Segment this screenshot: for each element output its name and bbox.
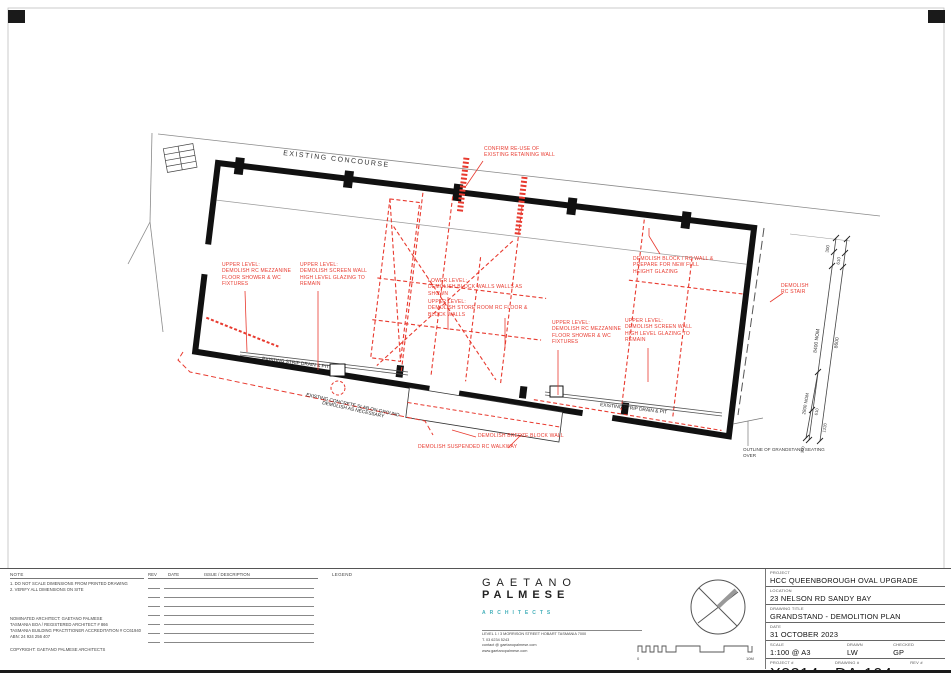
date-header: DATE bbox=[168, 572, 204, 577]
note-upper-screen-right: UPPER LEVEL: DEMOLISH SCREEN WALL HIGH L… bbox=[625, 318, 692, 343]
notes-title: NOTE bbox=[10, 572, 144, 579]
scale-bar bbox=[638, 646, 752, 652]
drawing-sheet: 300 610 8400 NOM 8600 2800 NOM 610 1220 … bbox=[0, 0, 951, 673]
north-scale-svg: 0 10M bbox=[628, 569, 773, 669]
drawn-value: LW bbox=[847, 648, 893, 657]
note-upper-mezzanine-left: UPPER LEVEL: DEMOLISH RC MEZZANINE FLOOR… bbox=[222, 262, 291, 287]
note-block-rc-wall: DEMOLISH BLOCK / RC WALL & PREPARE FOR N… bbox=[633, 256, 713, 275]
slab-note-line1: EXISTING CONCRETE SLAB ON GROUND bbox=[306, 392, 401, 419]
architect-name-line2: PALMESE bbox=[482, 589, 647, 601]
concourse-label: EXISTING CONCOURSE bbox=[283, 150, 390, 169]
architect-block: GAETANO PALMESE ARCHITECTS LEVEL 1 / 3 M… bbox=[482, 577, 647, 655]
note-lower-block-walls: LOWER LEVEL: DEMOLISH BLOCK WALLS WALLS … bbox=[428, 278, 522, 297]
existing-stair-plan bbox=[163, 144, 197, 173]
architect-web: www.gaetanopalmese.com bbox=[482, 649, 642, 655]
note-suspended-walkway: DEMOLISH SUSPENDED RC WALKWAY bbox=[418, 444, 517, 450]
title-block: PROJECT HCC QUEENBOROUGH OVAL UPGRADE LO… bbox=[765, 569, 945, 669]
project-name: HCC QUEENBOROUGH OVAL UPGRADE bbox=[770, 576, 941, 585]
revision-table: REV DATE ISSUE / DESCRIPTION bbox=[148, 572, 318, 579]
north-symbol bbox=[691, 580, 745, 634]
dim-300-top: 300 bbox=[825, 244, 831, 253]
revision-rows bbox=[164, 580, 314, 643]
location-row: LOCATION 23 NELSON RD SANDY BAY bbox=[766, 587, 945, 605]
project-label: PROJECT bbox=[770, 570, 941, 575]
checked-value: GP bbox=[893, 648, 941, 657]
date-label: DATE bbox=[770, 624, 941, 629]
date-value: 31 OCTOBER 2023 bbox=[770, 630, 941, 639]
checked-label: CHECKED bbox=[893, 642, 941, 647]
note-rc-stair: DEMOLISH RC STAIR bbox=[781, 283, 809, 296]
scale-drawn-checked-row: SCALE 1:100 @ A3 DRAWN LW CHECKED GP bbox=[766, 641, 945, 659]
project-row: PROJECT HCC QUEENBOROUGH OVAL UPGRADE bbox=[766, 569, 945, 587]
title-strip: NOTE 1. DO NOT SCALE DIMENSIONS FROM PRI… bbox=[0, 568, 951, 671]
dim-2800: 2800 NOM bbox=[801, 392, 810, 415]
note-seating-outline: OUTLINE OF GRANDSTAND SEATING OVER bbox=[743, 447, 825, 459]
scale-bar-end: 10M bbox=[746, 656, 754, 661]
note-upper-mezzanine-right: UPPER LEVEL: DEMOLISH RC MEZZANINE FLOOR… bbox=[552, 320, 621, 345]
corner-mark-top-right bbox=[928, 10, 945, 23]
architect-address: LEVEL 1 / 3 MORRISON STREET HOBART TASMA… bbox=[482, 630, 642, 655]
drawing-title-row: DRAWING TITLE GRANDSTAND - DEMOLITION PL… bbox=[766, 605, 945, 623]
rev-header: REV bbox=[148, 572, 168, 577]
rev-number-label: REV # bbox=[910, 660, 941, 665]
location-label: LOCATION bbox=[770, 588, 941, 593]
architect-subtitle: ARCHITECTS bbox=[482, 610, 647, 616]
dim-1220: 1220 bbox=[821, 422, 828, 433]
corner-mark-top-left bbox=[8, 10, 25, 23]
legend-panel: LEGEND bbox=[332, 572, 452, 577]
dim-610-bot: 610 bbox=[813, 407, 819, 415]
dimension-texts: 300 610 8400 NOM 8600 2800 NOM 610 1220 … bbox=[799, 244, 841, 453]
dim-8600: 8600 bbox=[833, 337, 840, 349]
legend-title: LEGEND bbox=[332, 572, 452, 577]
note-upper-store-room: UPPER LEVEL: DEMOLISH STORE ROOM RC FLOO… bbox=[428, 299, 528, 318]
project-number-label: PROJECT # bbox=[770, 660, 835, 665]
location-value: 23 NELSON RD SANDY BAY bbox=[770, 594, 941, 603]
drawing-title-value: GRANDSTAND - DEMOLITION PLAN bbox=[770, 612, 941, 621]
note-upper-screen-left: UPPER LEVEL: DEMOLISH SCREEN WALL HIGH L… bbox=[300, 262, 367, 287]
revision-table-header: REV DATE ISSUE / DESCRIPTION bbox=[148, 572, 318, 579]
note-confirm-retaining-wall: CONFIRM RE-USE OF EXISTING RETAINING WAL… bbox=[484, 146, 555, 159]
scale-bar-start: 0 bbox=[637, 656, 640, 661]
note-breeze-block-wall: DEMOLISH BREEZE BLOCK WALL bbox=[478, 433, 564, 439]
scale-label: SCALE bbox=[770, 642, 847, 647]
drawn-label: DRAWN bbox=[847, 642, 893, 647]
north-and-scale: 0 10M bbox=[628, 569, 773, 669]
revision-rev-column bbox=[148, 580, 160, 643]
issue-header: ISSUE / DESCRIPTION bbox=[204, 572, 250, 577]
copyright: COPYRIGHT: GAETANO PALMESE ARCHITECTS bbox=[10, 647, 146, 653]
dim-610-top: 610 bbox=[836, 256, 842, 265]
drawing-title-label: DRAWING TITLE bbox=[770, 606, 941, 611]
dim-8400: 8400 NOM bbox=[813, 329, 822, 354]
scale-value: 1:100 @ A3 bbox=[770, 648, 847, 657]
architect-name-line1: GAETANO bbox=[482, 577, 647, 589]
notes-panel: NOTE 1. DO NOT SCALE DIMENSIONS FROM PRI… bbox=[10, 572, 146, 653]
drawing-number-label: DRAWING # bbox=[835, 660, 910, 665]
date-row: DATE 31 OCTOBER 2023 bbox=[766, 623, 945, 641]
